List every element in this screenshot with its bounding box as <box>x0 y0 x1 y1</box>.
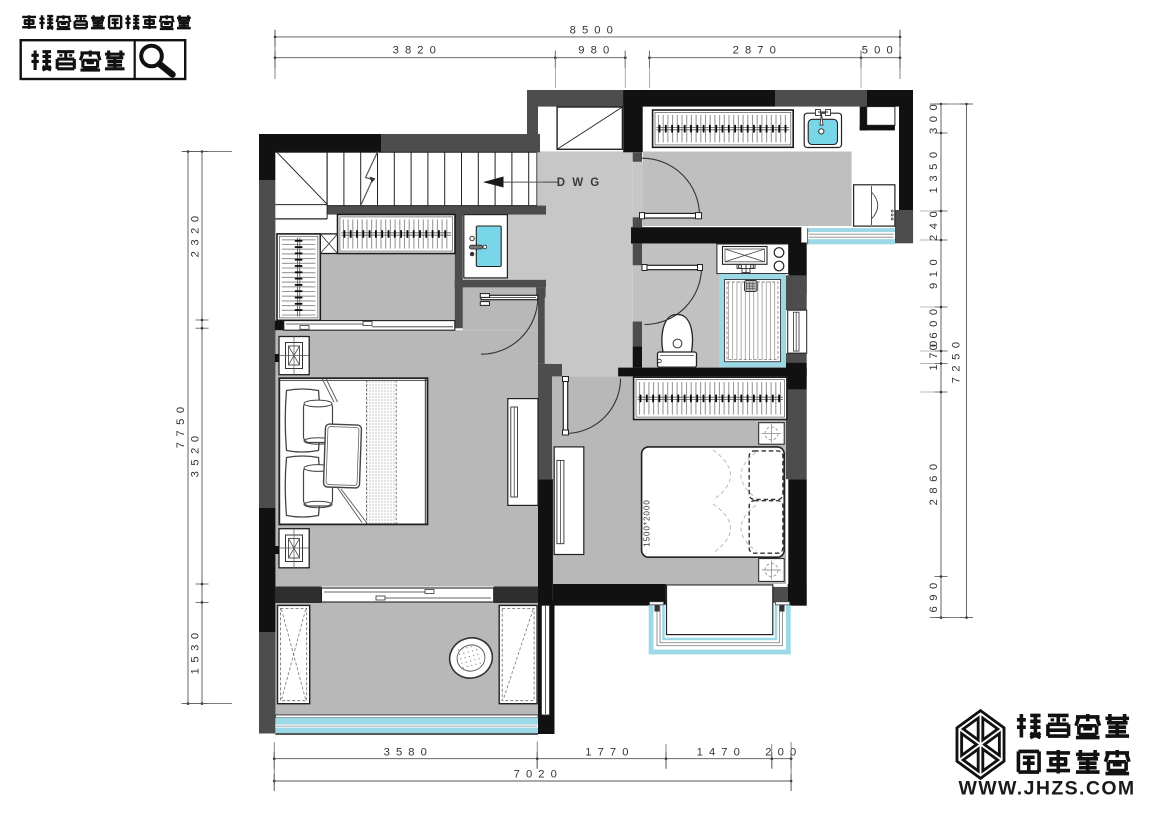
svg-text:1 7 0: 1 7 0 <box>928 340 940 371</box>
svg-text:2 4 0: 2 4 0 <box>928 210 940 241</box>
svg-text:1 3 5 0: 1 3 5 0 <box>928 151 940 194</box>
svg-text:1 4 7 0: 1 4 7 0 <box>697 747 742 759</box>
svg-text:2 0 0: 2 0 0 <box>765 747 797 759</box>
svg-text:7 0 2 0: 7 0 2 0 <box>514 769 559 781</box>
svg-text:8 5 0 0: 8 5 0 0 <box>570 25 615 37</box>
svg-text:2 8 7 0: 2 8 7 0 <box>733 45 778 57</box>
svg-text:3 8 2 0: 3 8 2 0 <box>393 45 438 57</box>
svg-text:9 8 0: 9 8 0 <box>578 45 610 57</box>
svg-text:D W G: D W G <box>557 177 602 189</box>
svg-text:1500*2000: 1500*2000 <box>643 499 652 547</box>
svg-text:7 2 5 0: 7 2 5 0 <box>951 341 963 384</box>
svg-text:6 9 0: 6 9 0 <box>928 582 940 613</box>
svg-text:3 5 2 0: 3 5 2 0 <box>190 435 202 478</box>
svg-text:2 3 2 0: 2 3 2 0 <box>190 215 202 258</box>
svg-text:7 7 5 0: 7 7 5 0 <box>175 406 187 449</box>
svg-text:1 5 3 0: 1 5 3 0 <box>190 632 202 675</box>
svg-text:WWW.JHZS.COM: WWW.JHZS.COM <box>958 778 1135 800</box>
svg-text:2 8 6 0: 2 8 6 0 <box>928 463 940 506</box>
svg-text:9 1 0: 9 1 0 <box>928 258 940 289</box>
svg-text:5 0 0: 5 0 0 <box>862 45 894 57</box>
svg-text:3 5 8 0: 3 5 8 0 <box>384 747 429 759</box>
svg-text:3 0 0: 3 0 0 <box>928 103 940 134</box>
svg-text:1 7 7 0: 1 7 7 0 <box>585 747 630 759</box>
